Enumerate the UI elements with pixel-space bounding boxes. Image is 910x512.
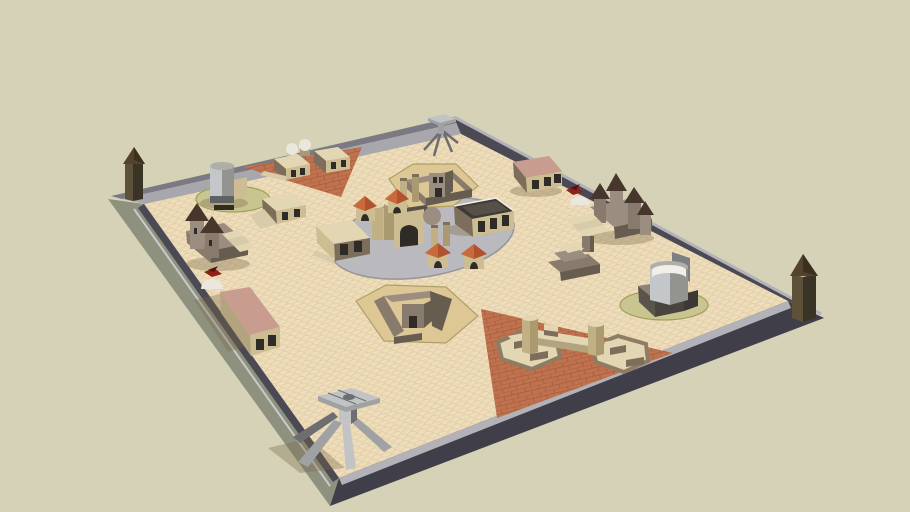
bridge-tower-top [522,315,538,321]
column-cap [431,225,438,228]
model-viewport[interactable] [0,0,910,512]
window [194,228,197,234]
opening [354,241,362,252]
column [443,224,450,246]
round-tank [423,207,441,225]
scene-canvas[interactable] [0,0,910,512]
window [433,177,437,183]
silo-top [210,162,234,170]
window [439,177,443,183]
tower-lit-face [125,162,133,201]
gate-arch [400,225,418,247]
window [544,177,551,186]
window [331,162,336,169]
tower-dark-face [803,274,816,322]
window [478,221,485,232]
opening [340,244,348,255]
tower-dark-face [133,162,143,201]
column [412,176,419,202]
bridge-tower-lit [588,324,596,356]
window [291,170,296,177]
bridge-tower-lit [522,318,530,354]
window [554,174,561,183]
column-cap [443,222,450,225]
window [282,212,288,220]
window [341,160,346,167]
window [490,218,497,229]
dome [286,143,298,155]
window [256,339,264,350]
turret [610,189,623,219]
window [502,215,509,226]
dome [299,139,311,151]
silo-shed [233,177,247,200]
window [209,240,212,246]
platform-tower-side [590,236,594,252]
bridge-tower-dark [530,318,538,354]
window [294,209,300,217]
door [409,316,417,328]
silo-bench [214,205,234,210]
turret [640,213,651,235]
column-cap [412,174,419,177]
door [435,188,442,197]
window [300,168,305,175]
tower-lit-face [792,274,803,322]
bridge-tower-dark [596,324,604,356]
silo-band [210,196,234,203]
window [268,335,276,346]
column-cap [400,178,407,181]
bridge-tower-top [588,321,604,327]
window [532,180,539,189]
